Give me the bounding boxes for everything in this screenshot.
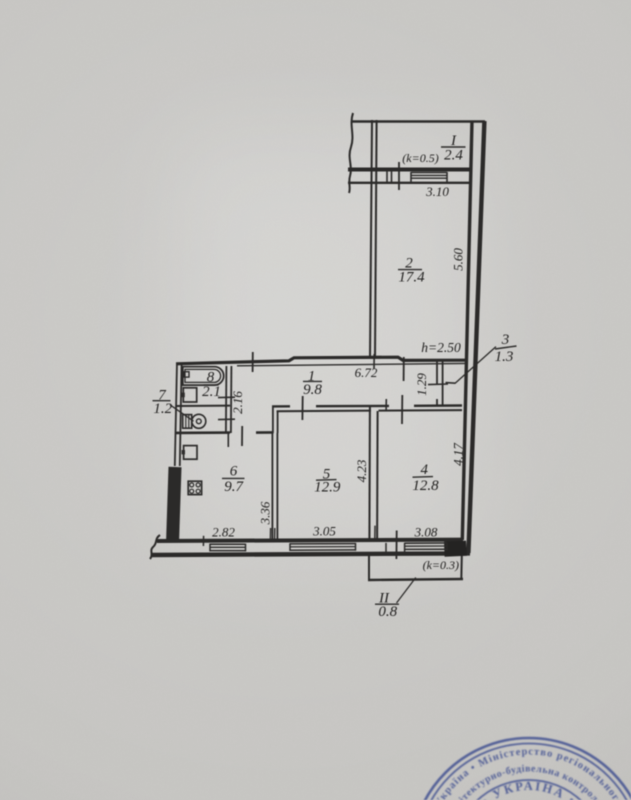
- svg-text:1.3: 1.3: [495, 349, 514, 365]
- svg-text:4.23: 4.23: [354, 459, 369, 482]
- svg-text:3: 3: [501, 332, 510, 348]
- svg-text:3.05: 3.05: [312, 524, 336, 539]
- svg-text:4: 4: [421, 462, 429, 478]
- svg-text:9.8: 9.8: [303, 382, 322, 398]
- svg-text:3.10: 3.10: [425, 184, 449, 199]
- svg-text:h=2.50: h=2.50: [421, 340, 461, 355]
- svg-text:(k=0.3): (k=0.3): [423, 558, 459, 572]
- svg-text:0.8: 0.8: [378, 604, 397, 620]
- svg-text:4.17: 4.17: [451, 443, 466, 466]
- svg-text:2.4: 2.4: [444, 148, 463, 164]
- svg-text:(k=0.5): (k=0.5): [402, 151, 438, 165]
- svg-text:17.4: 17.4: [398, 270, 425, 286]
- svg-text:1.2: 1.2: [153, 401, 172, 417]
- svg-text:12.9: 12.9: [314, 479, 341, 495]
- svg-text:3.08: 3.08: [414, 525, 438, 540]
- svg-text:9.7: 9.7: [224, 479, 244, 495]
- svg-text:12.8: 12.8: [412, 478, 439, 494]
- svg-text:2.16: 2.16: [230, 391, 245, 414]
- svg-text:5.60: 5.60: [450, 248, 465, 271]
- svg-text:6.72: 6.72: [355, 365, 378, 380]
- svg-text:6: 6: [230, 463, 238, 479]
- svg-text:2.1: 2.1: [202, 384, 221, 400]
- svg-text:3.36: 3.36: [257, 501, 272, 525]
- svg-text:1.29: 1.29: [414, 373, 429, 396]
- svg-text:2.82: 2.82: [212, 525, 235, 540]
